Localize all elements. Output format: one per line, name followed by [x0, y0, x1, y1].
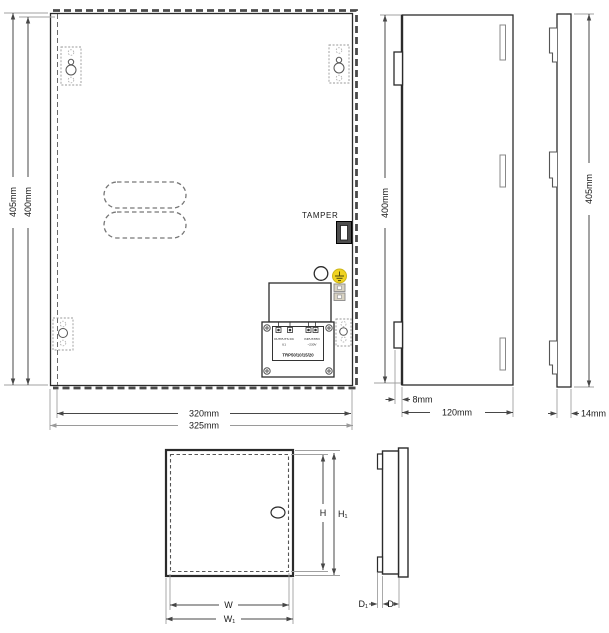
dim-label-front-height-inner: 400mm — [23, 187, 33, 217]
dim-label-side-height: 400mm — [380, 188, 390, 218]
side-view: 400mm 8mm 120mm — [374, 15, 513, 418]
side-hinge-bottom — [394, 322, 403, 348]
dim-label-key-height-outer: H₁ — [338, 509, 348, 519]
key-front-view: H H₁ W W₁ — [166, 450, 348, 624]
key-lock-oval — [271, 507, 285, 518]
dim-key-height-inner: H — [291, 455, 328, 572]
dim-front-height-inner: 400mm — [19, 17, 55, 385]
door-hinge-top — [550, 28, 558, 62]
dim-label-side-depth: 120mm — [442, 408, 472, 418]
dim-label-front-width-inner: 320mm — [189, 409, 219, 419]
door-slab — [557, 14, 571, 387]
pcb-input-label: INPUT/PRI — [304, 337, 319, 341]
key-hinge-top — [378, 454, 383, 469]
pcb-board: OUTPUTS DC U1 INPUT/PRI ~230V TRP50/10/1… — [262, 322, 334, 377]
dim-key-offset: D₁ — [358, 573, 389, 609]
back-slot-bottom — [500, 338, 506, 370]
transformer-outline — [269, 283, 331, 322]
key-body-slab — [383, 451, 399, 574]
back-slot-top — [500, 25, 506, 60]
dim-label-door-thickness: 14mm — [581, 409, 606, 419]
dim-label-side-door-offset: 8mm — [413, 395, 433, 405]
door-hinge-bottom — [550, 341, 558, 374]
dim-label-key-depth: D — [387, 599, 394, 609]
front-view: TAMPER — [4, 11, 357, 431]
dim-label-front-width-outer: 325mm — [189, 421, 219, 431]
enclosure-dimensional-drawing: TAMPER — [0, 0, 609, 633]
tamper-switch — [337, 222, 352, 244]
dim-label-door-height: 405mm — [584, 174, 594, 204]
pcb-model-label: TRP50/10/15/20 — [282, 353, 314, 358]
tamper-label: TAMPER — [302, 211, 338, 220]
dim-key-width-inner: W — [170, 573, 289, 610]
dim-label-key-width-inner: W — [224, 600, 233, 610]
dim-key-depth: D — [387, 578, 399, 609]
technical-drawing-canvas: TAMPER — [0, 0, 609, 633]
dim-label-front-height-outer: 405mm — [8, 187, 18, 217]
dim-label-key-width-outer: W₁ — [224, 614, 236, 624]
pcb-output-label: OUTPUTS DC — [274, 337, 295, 341]
side-view-body — [402, 15, 513, 385]
dim-label-key-height-inner: H — [320, 508, 327, 518]
key-back-plate — [399, 448, 409, 577]
pcb-output-ref: U1 — [282, 343, 286, 347]
side-hinge-top — [394, 52, 403, 85]
dim-label-key-offset: D₁ — [358, 599, 368, 609]
pcb-input-voltage: ~230V — [307, 343, 317, 347]
door-hinge-middle — [550, 152, 558, 187]
back-slot-middle — [500, 155, 506, 187]
earth-terminal-icon — [333, 269, 347, 283]
key-hinge-bottom — [378, 557, 383, 572]
dim-door-height: 405mm — [574, 14, 594, 387]
key-side-view: D₁ D — [358, 448, 408, 609]
door-edge-view: 405mm 14mm — [548, 14, 606, 419]
dim-door-thickness: 14mm — [548, 389, 606, 419]
